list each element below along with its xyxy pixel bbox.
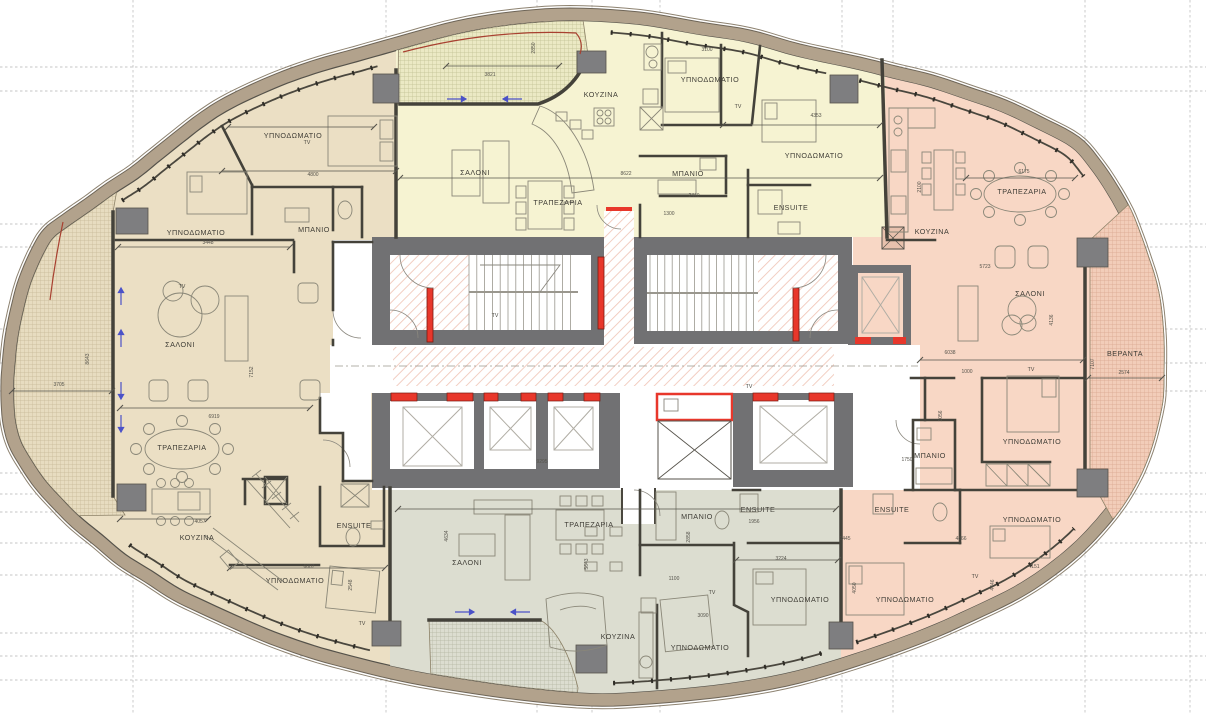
svg-text:TV: TV — [972, 574, 979, 580]
svg-text:3100: 3100 — [701, 47, 712, 53]
svg-text:1056: 1056 — [938, 410, 944, 421]
svg-text:6038: 6038 — [944, 350, 955, 356]
svg-text:TV: TV — [179, 284, 186, 290]
svg-text:ΥΠΝΟΔΩΜΑΤΙΟ: ΥΠΝΟΔΩΜΑΤΙΟ — [1003, 515, 1062, 524]
svg-text:TV: TV — [746, 384, 753, 390]
svg-text:ΒΕΡΑΝΤΑ: ΒΕΡΑΝΤΑ — [1107, 349, 1143, 358]
svg-text:8643: 8643 — [85, 353, 91, 364]
svg-text:1100: 1100 — [669, 576, 680, 582]
svg-text:1300: 1300 — [663, 211, 674, 217]
svg-text:4136: 4136 — [1049, 314, 1055, 325]
svg-text:ΚΟΥΖΙΝΑ: ΚΟΥΖΙΝΑ — [584, 90, 619, 99]
svg-text:4446: 4446 — [990, 579, 996, 590]
svg-text:3090: 3090 — [697, 613, 708, 619]
svg-text:2100: 2100 — [917, 181, 923, 192]
svg-text:6007: 6007 — [303, 564, 314, 570]
svg-text:4634: 4634 — [444, 530, 450, 541]
svg-text:ΥΠΝΟΔΩΜΑΤΙΟ: ΥΠΝΟΔΩΜΑΤΙΟ — [264, 131, 323, 140]
svg-text:TV: TV — [492, 313, 499, 319]
svg-text:TV: TV — [359, 621, 366, 627]
svg-text:5723: 5723 — [979, 264, 990, 270]
svg-text:5643: 5643 — [584, 558, 590, 569]
svg-text:ΤΡΑΠΕΖΑΡΙΑ: ΤΡΑΠΕΖΑΡΙΑ — [997, 187, 1046, 196]
svg-text:1000: 1000 — [961, 369, 972, 375]
svg-text:ΣΑΛΟΝΙ: ΣΑΛΟΝΙ — [460, 168, 490, 177]
svg-text:ΤΡΑΠΕΖΑΡΙΑ: ΤΡΑΠΕΖΑΡΙΑ — [564, 520, 613, 529]
svg-text:ΜΠΑΝΙΟ: ΜΠΑΝΙΟ — [681, 512, 713, 521]
svg-text:ΥΠΝΟΔΩΜΑΤΙΟ: ΥΠΝΟΔΩΜΑΤΙΟ — [167, 228, 226, 237]
svg-text:ΥΠΝΟΔΩΜΑΤΙΟ: ΥΠΝΟΔΩΜΑΤΙΟ — [671, 643, 730, 652]
svg-text:ENSUITE: ENSUITE — [741, 505, 776, 514]
svg-text:ΜΠΑΝΙΟ: ΜΠΑΝΙΟ — [914, 451, 946, 460]
svg-text:ENSUITE: ENSUITE — [337, 521, 372, 530]
svg-text:ΜΠΑΝΙΟ: ΜΠΑΝΙΟ — [672, 169, 704, 178]
svg-text:ΣΑΛΟΝΙ: ΣΑΛΟΝΙ — [165, 340, 195, 349]
svg-text:ΥΠΝΟΔΩΜΑΤΙΟ: ΥΠΝΟΔΩΜΑΤΙΟ — [681, 75, 740, 84]
svg-text:TV: TV — [1028, 367, 1035, 373]
svg-text:4866: 4866 — [955, 536, 966, 542]
svg-text:ENSUITE: ENSUITE — [875, 505, 910, 514]
svg-text:ΥΠΝΟΔΩΜΑΤΙΟ: ΥΠΝΟΔΩΜΑΤΙΟ — [785, 151, 844, 160]
svg-text:ΤΡΑΠΕΖΑΡΙΑ: ΤΡΑΠΕΖΑΡΙΑ — [533, 198, 582, 207]
svg-text:3224: 3224 — [775, 556, 786, 562]
svg-text:1750: 1750 — [901, 457, 912, 463]
svg-text:4151: 4151 — [1028, 564, 1039, 570]
svg-text:7107: 7107 — [1090, 358, 1096, 369]
svg-text:2548: 2548 — [348, 579, 354, 590]
svg-text:ΥΠΝΟΔΩΜΑΤΙΟ: ΥΠΝΟΔΩΜΑΤΙΟ — [771, 595, 830, 604]
svg-text:ΚΟΥΖΙΝΑ: ΚΟΥΖΙΝΑ — [180, 533, 215, 542]
svg-text:ΥΠΝΟΔΩΜΑΤΙΟ: ΥΠΝΟΔΩΜΑΤΙΟ — [876, 595, 935, 604]
svg-text:6175: 6175 — [1018, 169, 1029, 175]
svg-text:ΣΑΛΟΝΙ: ΣΑΛΟΝΙ — [452, 558, 482, 567]
svg-text:ΤΡΑΠΕΖΑΡΙΑ: ΤΡΑΠΕΖΑΡΙΑ — [157, 443, 206, 452]
svg-text:1956: 1956 — [748, 519, 759, 525]
svg-text:3705: 3705 — [53, 382, 64, 388]
svg-text:ENSUITE: ENSUITE — [774, 203, 809, 212]
svg-text:7152: 7152 — [249, 366, 255, 377]
svg-text:1445: 1445 — [839, 536, 850, 542]
svg-text:4057: 4057 — [194, 519, 205, 525]
svg-text:TV: TV — [709, 590, 716, 596]
svg-text:ΚΟΥΖΙΝΑ: ΚΟΥΖΙΝΑ — [601, 632, 636, 641]
svg-text:2574: 2574 — [1118, 370, 1129, 376]
svg-text:ΥΠΝΟΔΩΜΑΤΙΟ: ΥΠΝΟΔΩΜΑΤΙΟ — [266, 576, 325, 585]
svg-text:ΣΑΛΟΝΙ: ΣΑΛΟΝΙ — [1015, 289, 1045, 298]
svg-text:ΜΠΑΝΙΟ: ΜΠΑΝΙΟ — [298, 225, 330, 234]
svg-text:TV: TV — [735, 104, 742, 110]
svg-text:3821: 3821 — [484, 72, 495, 78]
svg-text:3448: 3448 — [202, 240, 213, 246]
svg-text:ΥΠΝΟΔΩΜΑΤΙΟ: ΥΠΝΟΔΩΜΑΤΙΟ — [1003, 437, 1062, 446]
svg-text:6919: 6919 — [208, 414, 219, 420]
svg-text:9295: 9295 — [536, 459, 547, 465]
svg-text:2850: 2850 — [531, 42, 537, 53]
svg-text:8622: 8622 — [620, 171, 631, 177]
svg-text:TV: TV — [304, 140, 311, 146]
svg-text:2858: 2858 — [686, 531, 692, 542]
svg-text:ΚΟΥΖΙΝΑ: ΚΟΥΖΙΝΑ — [915, 227, 950, 236]
svg-text:4800: 4800 — [307, 172, 318, 178]
svg-text:4050: 4050 — [852, 582, 858, 593]
svg-text:2440: 2440 — [688, 193, 699, 199]
svg-text:4353: 4353 — [810, 113, 821, 119]
